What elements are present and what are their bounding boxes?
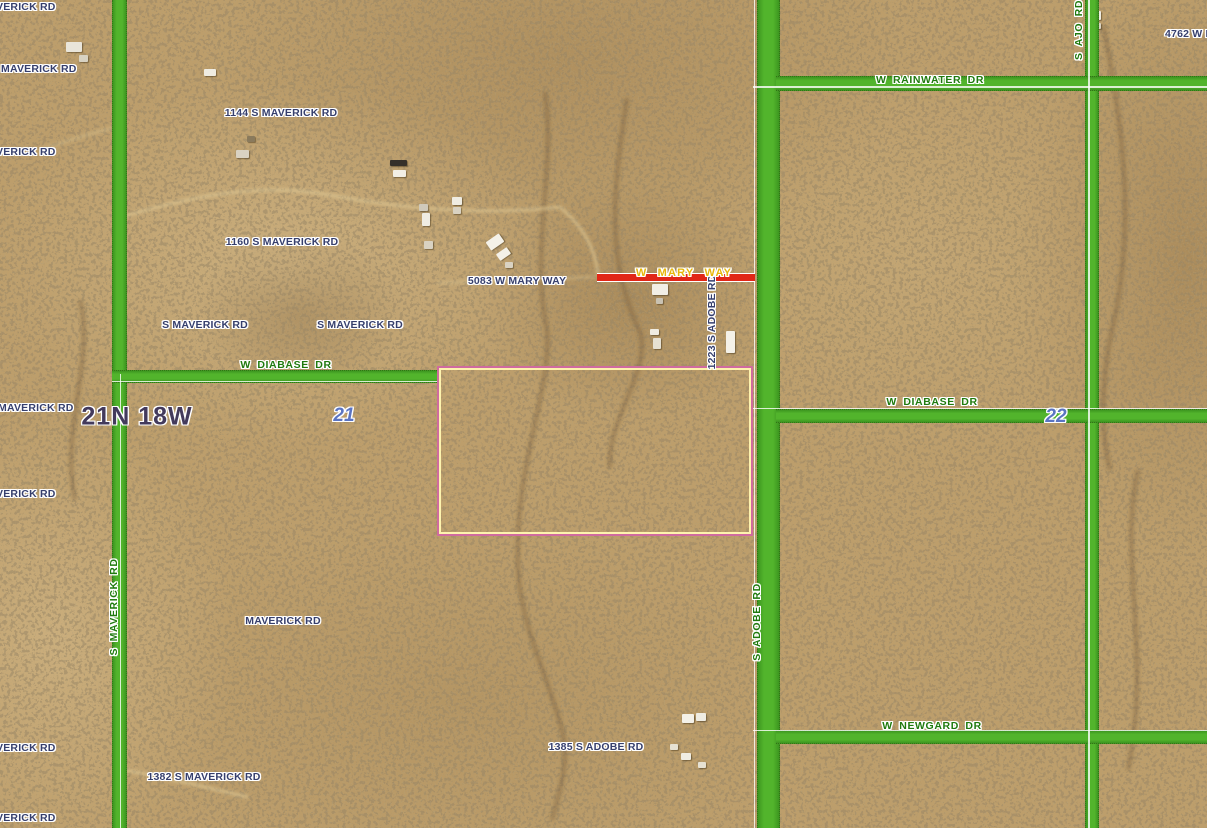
- building-footprint: [496, 247, 511, 261]
- address-label-s-maverick-rd: S MAVERICK RD: [162, 319, 248, 331]
- mary-way-red-road-segment: [597, 273, 755, 282]
- building-footprint: [422, 213, 430, 226]
- building-footprint: [650, 329, 659, 335]
- address-label-1385-s-adobe-rd: 1385 S ADOBE RD: [549, 741, 644, 753]
- building-footprint: [390, 160, 407, 166]
- parcel-boundary-line: [1088, 0, 1090, 828]
- building-footprint: [486, 233, 505, 250]
- building-footprint: [66, 42, 82, 52]
- building-footprint: [681, 753, 691, 760]
- building-footprint: [236, 150, 249, 158]
- address-label-1144-s-maverick-rd: 1144 S MAVERICK RD: [225, 107, 338, 119]
- parcel-boundary-line: [753, 86, 1207, 88]
- parcel-boundary-line: [120, 374, 122, 828]
- address-label-maverick-rd: MAVERICK RD: [1, 63, 77, 75]
- selected-parcel-boundary[interactable]: [437, 366, 753, 536]
- building-footprint: [696, 713, 706, 721]
- building-footprint: [393, 170, 406, 177]
- address-label-maverick-rd: MAVERICK RD: [245, 615, 321, 627]
- address-label-verick-rd: VERICK RD: [0, 812, 56, 824]
- building-footprint: [453, 207, 461, 214]
- address-label-maverick-rd: MAVERICK RD: [0, 402, 74, 414]
- building-footprint: [247, 136, 255, 142]
- address-label-verick-rd: VERICK RD: [0, 146, 56, 158]
- building-footprint: [505, 262, 513, 268]
- building-footprint: [653, 338, 661, 349]
- parcel-boundary-line: [112, 381, 437, 383]
- address-label-verick-rd: VERICK RD: [0, 488, 56, 500]
- road-line-w-rainwater-dr: [776, 76, 1207, 91]
- section-number-label-21: 21: [333, 405, 354, 427]
- building-footprint: [670, 744, 678, 750]
- township-range-label-21n-18w: 21N 18W: [81, 403, 192, 432]
- building-footprint: [726, 331, 735, 353]
- parcel-inner-outline: [439, 368, 751, 534]
- address-label-1223-s-adobe-rd: 1223 S ADOBE RD: [706, 275, 718, 370]
- parcel-boundary-line: [753, 730, 1207, 732]
- address-label-1382-s-maverick-rd: 1382 S MAVERICK RD: [147, 771, 260, 783]
- address-label-4762-w-r: 4762 W R: [1165, 28, 1207, 40]
- parcel-boundary-line: [754, 0, 756, 828]
- parcel-boundary-line: [753, 408, 1207, 410]
- road-line-w-diabase-dr-east: [776, 409, 1207, 423]
- building-footprint: [424, 241, 433, 249]
- road-name-label-w-diabase-dr: W DIABASE DR: [886, 396, 977, 408]
- address-label-1160-s-maverick-rd: 1160 S MAVERICK RD: [226, 236, 339, 248]
- building-footprint: [698, 762, 706, 768]
- map-canvas[interactable]: VERICK RDMAVERICK RDVERICK RDMAVERICK RD…: [0, 0, 1207, 828]
- address-label-5083-w-mary-way: 5083 W MARY WAY: [468, 275, 566, 287]
- road-name-label-s-ajo-rd: S AJO RD: [1073, 0, 1085, 60]
- building-footprint: [452, 197, 462, 205]
- building-footprint: [656, 298, 663, 304]
- building-footprint: [204, 69, 216, 76]
- road-line-w-newgard-dr: [776, 730, 1207, 744]
- address-label-verick-rd: VERICK RD: [0, 742, 56, 754]
- building-footprint: [79, 55, 88, 62]
- building-footprint: [652, 284, 668, 295]
- address-label-s-maverick-rd: S MAVERICK RD: [317, 319, 403, 331]
- building-footprint: [419, 204, 428, 211]
- building-footprint: [682, 714, 694, 723]
- address-label-verick-rd: VERICK RD: [0, 1, 56, 13]
